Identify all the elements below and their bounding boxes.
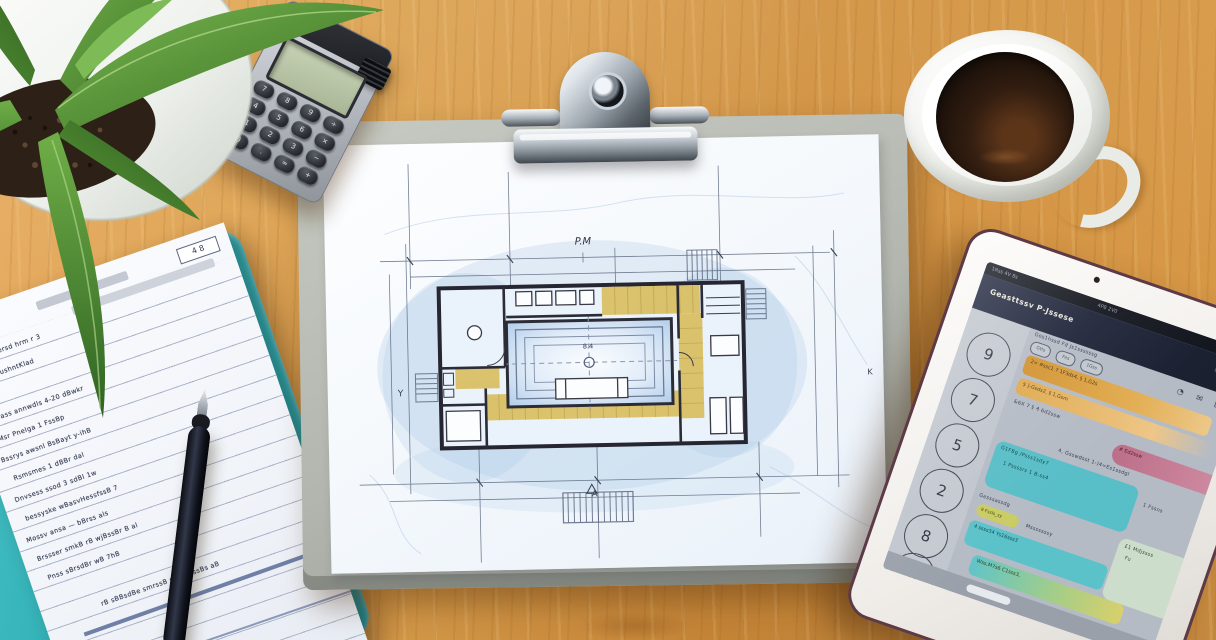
clip-bar <box>513 126 698 163</box>
clipboard-clip <box>504 50 706 171</box>
coffee-glint <box>970 146 1040 168</box>
card-text: Fu <box>1124 555 1132 563</box>
camera-dot-icon <box>1093 276 1101 284</box>
row-text: Msssssssy <box>1025 523 1054 538</box>
row-text: 1 Fssns <box>1142 502 1164 514</box>
desk-scene: aus 4 8 Bmav sxersd hrm r 3 rC dnushntKl… <box>0 0 1216 640</box>
wood-knot <box>560 606 710 640</box>
coffee-mug <box>900 28 1120 218</box>
clip-hinge <box>649 106 709 124</box>
plan-dim-label: 8.4 <box>583 342 594 350</box>
plan-title: P.M <box>575 236 592 247</box>
clip-hinge <box>501 109 561 127</box>
plan-right-mark: K <box>867 367 873 376</box>
clip-hole <box>588 72 627 111</box>
